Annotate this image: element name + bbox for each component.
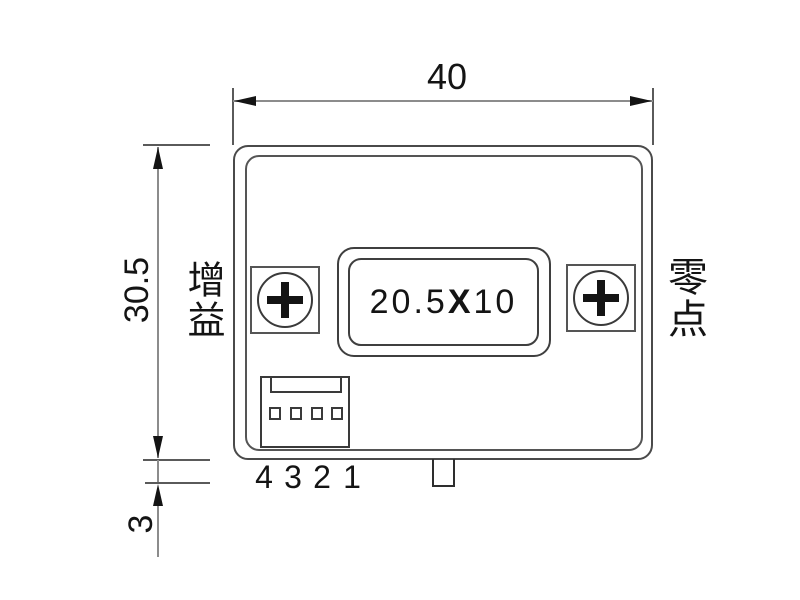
pin-label-3: 3 [279,459,307,496]
width-dimension-value: 40 [407,56,487,98]
display-value: 20.5X10 [348,258,539,346]
height-dimension-line [157,147,159,458]
arrow-down-icon [153,436,163,458]
arrow-up-icon [153,147,163,169]
height-dimension-value: 30.5 [118,240,150,340]
arrow-right-icon [630,96,652,106]
width-extension-line-right [652,88,654,145]
connector-pin [290,407,302,420]
height-extension-line-top [143,144,210,146]
arrow-left-icon [234,96,256,106]
connector-pin [311,407,323,420]
pin-label-2: 2 [308,459,336,496]
bottom-tab [432,459,455,487]
display-value-prefix: 20.5 [370,283,448,322]
connector-pin [331,407,343,420]
display-value-multiplier: X [448,283,474,322]
connector-notch [270,376,342,393]
pin-label-1: 1 [338,459,366,496]
zero-label: 零点 [662,256,706,340]
tab-dimension-value: 3 [122,494,154,554]
screw-plus-icon [281,282,289,318]
display-value-suffix: 10 [474,283,518,322]
height-extension-line-bottom [143,459,210,461]
gain-label: 增益 [181,260,223,340]
arrow-up-icon [153,484,163,506]
connector-pin [269,407,281,420]
width-dimension-line [233,100,653,102]
pin-label-4: 4 [250,459,278,496]
screw-plus-icon [597,280,605,316]
dimension-drawing-canvas: 40 30.5 3 增益 零点 20.5X10 [0,0,800,600]
tab-dimension-line-mid [157,460,159,482]
tab-dimension-line-tail [157,506,159,557]
